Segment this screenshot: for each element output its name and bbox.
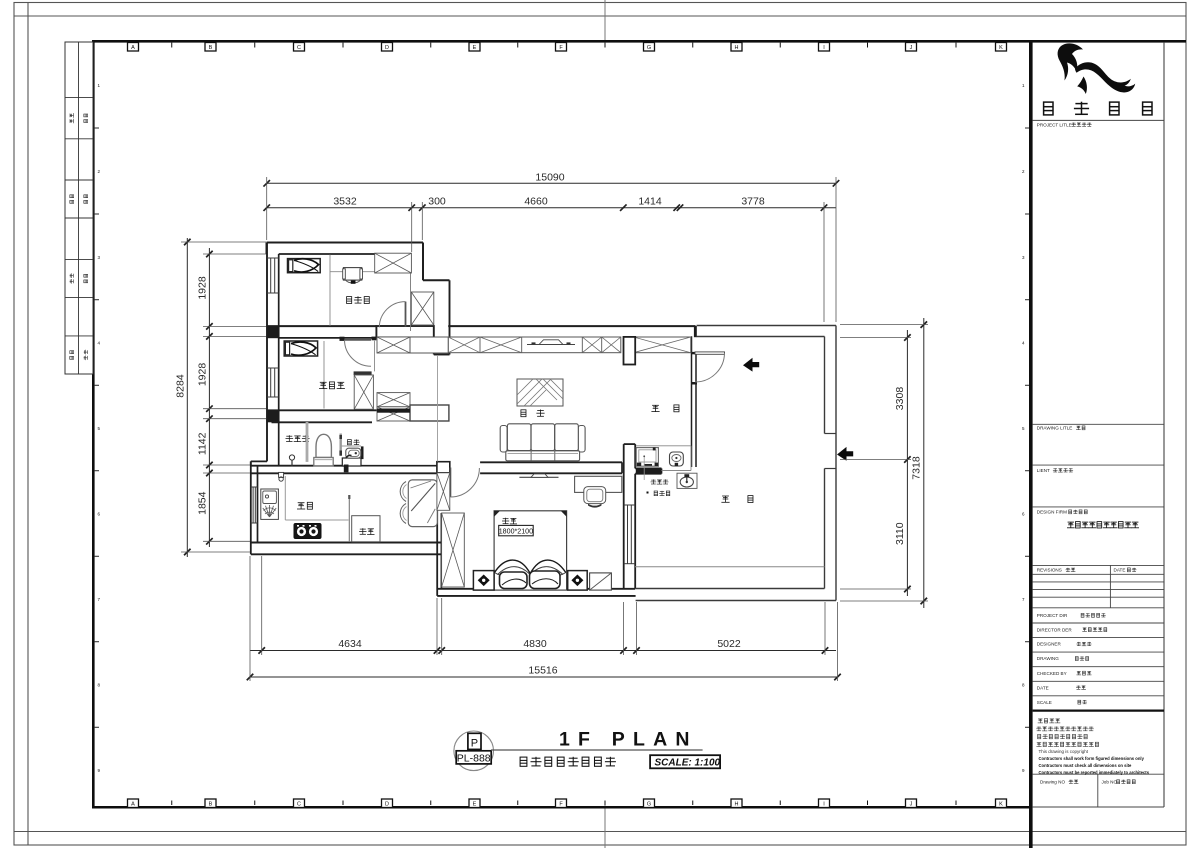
svg-text:G: G (647, 45, 651, 51)
svg-text:1928: 1928 (196, 363, 208, 387)
svg-text:A: A (131, 802, 135, 808)
svg-text:4660: 4660 (524, 196, 548, 208)
svg-text:E: E (473, 45, 477, 51)
svg-text:Contractors must check all dim: Contractors must check all dimensions on… (1039, 763, 1133, 768)
svg-text:1854: 1854 (196, 491, 208, 515)
svg-text:1928: 1928 (196, 276, 208, 300)
svg-text:P: P (471, 737, 478, 749)
svg-text:Job NO: Job NO (1102, 780, 1118, 785)
svg-text:E: E (473, 802, 477, 808)
svg-text:Contractors must be reported i: Contractors must be reported immediately… (1039, 770, 1150, 775)
svg-text:PL-888: PL-888 (457, 752, 491, 764)
svg-text:5022: 5022 (717, 638, 741, 650)
svg-text:C: C (297, 45, 301, 51)
svg-text:1142: 1142 (196, 432, 208, 455)
svg-text:PROJECT DIR: PROJECT DIR (1037, 613, 1068, 618)
svg-text:CHECKED BY: CHECKED BY (1037, 671, 1067, 676)
svg-text:This drawing is copyright: This drawing is copyright (1039, 749, 1089, 754)
svg-text:DRAWING LITLE: DRAWING LITLE (1037, 426, 1073, 431)
svg-text:G: G (647, 802, 651, 808)
svg-text:DATE: DATE (1114, 568, 1126, 573)
svg-text:15090: 15090 (535, 171, 564, 183)
svg-text:LIENT: LIENT (1037, 468, 1050, 473)
svg-text:8284: 8284 (174, 374, 186, 398)
svg-text:J: J (910, 45, 913, 51)
svg-text:B: B (209, 802, 213, 808)
svg-text:DRAWING: DRAWING (1037, 656, 1059, 661)
svg-text:3110: 3110 (894, 522, 906, 545)
svg-text:4830: 4830 (523, 638, 547, 650)
svg-text:300: 300 (428, 196, 446, 208)
svg-text:K: K (999, 45, 1003, 51)
svg-text:B: B (209, 45, 213, 51)
svg-text:4634: 4634 (338, 638, 362, 650)
svg-text:H: H (735, 802, 739, 808)
svg-text:A: A (131, 45, 135, 51)
svg-text:K: K (999, 802, 1003, 808)
svg-text:DESIGNER: DESIGNER (1037, 642, 1062, 647)
svg-text:15516: 15516 (528, 665, 557, 677)
svg-text:1414: 1414 (638, 196, 662, 208)
svg-text:1F PLAN: 1F PLAN (559, 729, 698, 751)
svg-text:SCALE: 1:100: SCALE: 1:100 (655, 758, 721, 769)
svg-text:C: C (297, 802, 301, 808)
svg-text:REVISIONS: REVISIONS (1037, 568, 1062, 573)
svg-text:Contractors shall work form fi: Contractors shall work form figured dime… (1039, 756, 1145, 761)
svg-text:DESIGN FIRM: DESIGN FIRM (1037, 510, 1067, 515)
svg-text:Drawing NO: Drawing NO (1040, 780, 1065, 785)
svg-text:J: J (910, 802, 913, 808)
svg-text:D: D (385, 802, 389, 808)
svg-text:DATE: DATE (1037, 685, 1049, 690)
svg-text:DIRECTOR DER: DIRECTOR DER (1037, 627, 1073, 632)
svg-text:1800*2100: 1800*2100 (499, 527, 533, 535)
svg-text:3308: 3308 (894, 387, 906, 411)
svg-text:SCALE: SCALE (1037, 700, 1052, 705)
svg-text:D: D (385, 45, 389, 51)
svg-text:3532: 3532 (333, 196, 357, 208)
svg-text:3778: 3778 (741, 196, 765, 208)
svg-text:PROJECT LITLE: PROJECT LITLE (1037, 123, 1072, 128)
svg-text:7318: 7318 (911, 456, 923, 480)
svg-text:H: H (735, 45, 739, 51)
